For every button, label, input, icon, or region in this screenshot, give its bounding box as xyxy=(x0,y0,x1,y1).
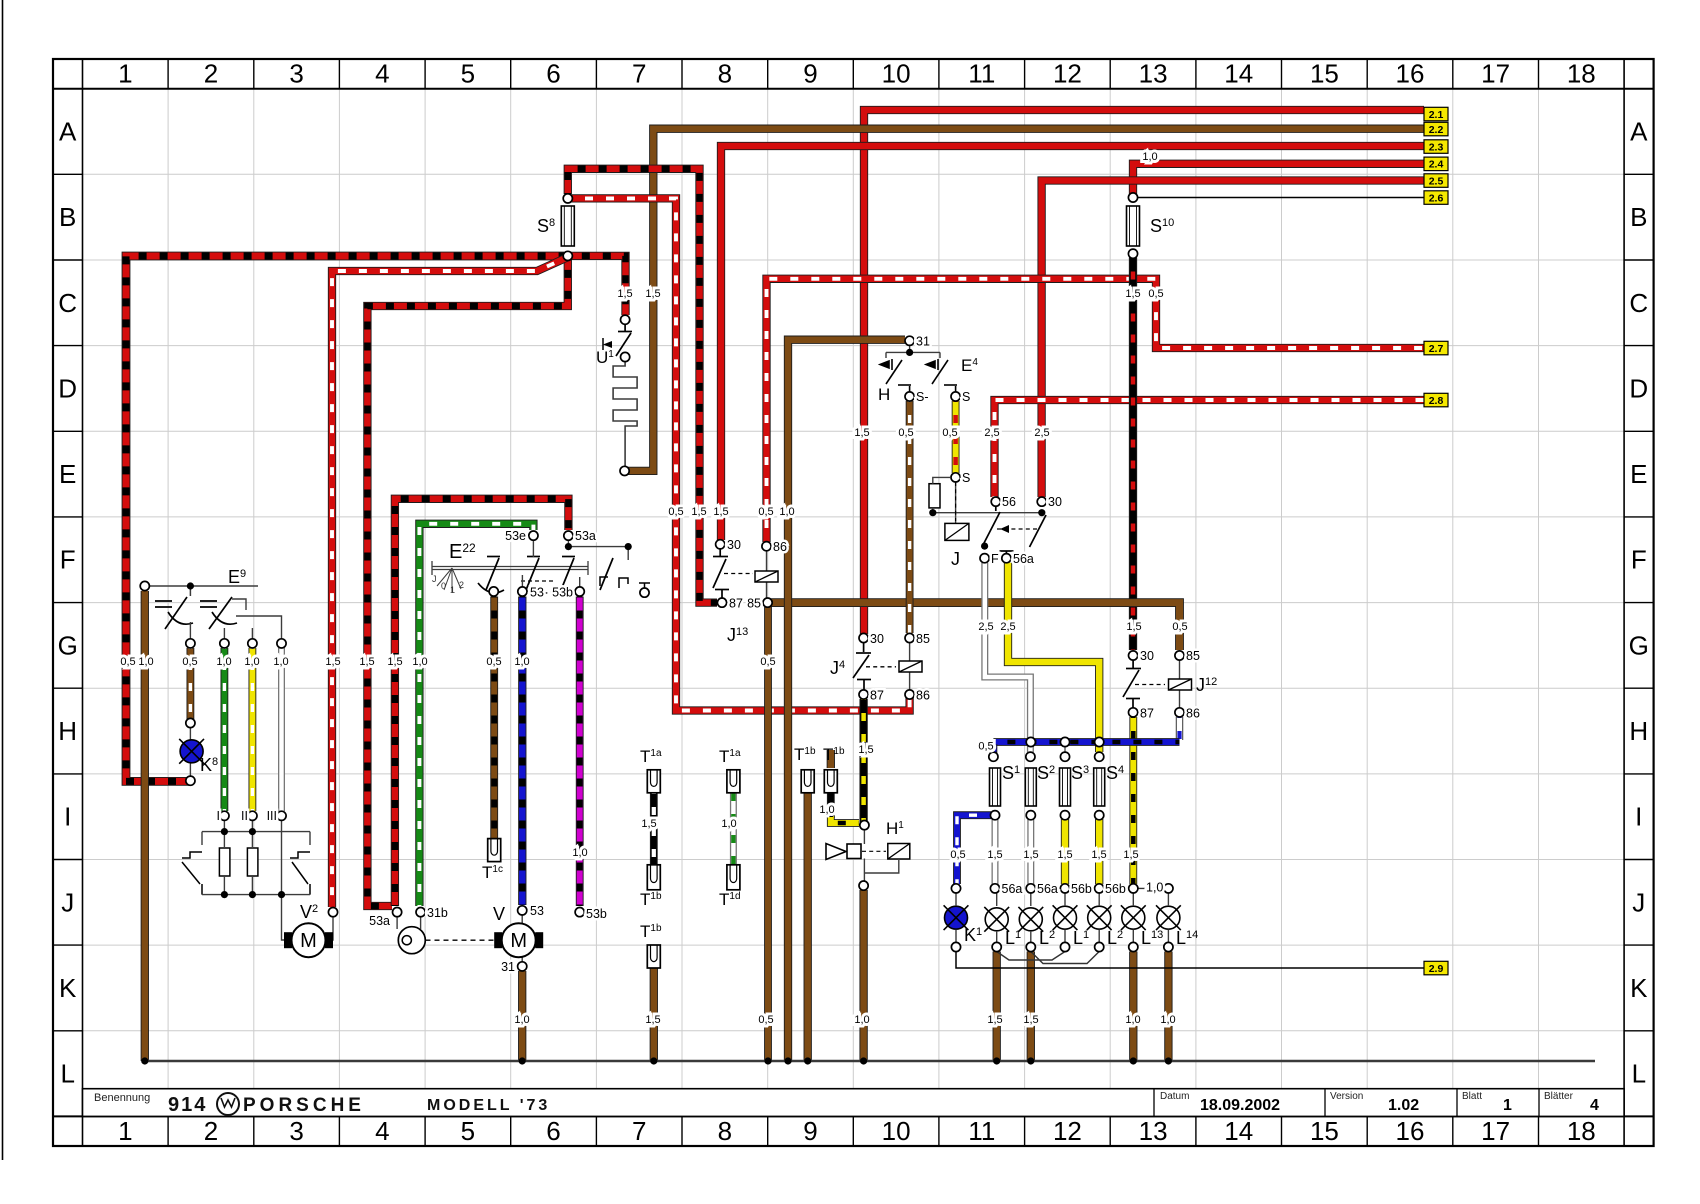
svg-text:1,5: 1,5 xyxy=(641,818,656,830)
svg-text:S: S xyxy=(962,390,970,404)
svg-text:1,0: 1,0 xyxy=(1125,1014,1140,1026)
svg-text:I: I xyxy=(217,809,220,823)
svg-text:7: 7 xyxy=(632,59,646,89)
svg-text:S: S xyxy=(962,471,970,485)
svg-text:1,5: 1,5 xyxy=(645,1014,660,1026)
svg-text:1.02: 1.02 xyxy=(1388,1097,1419,1114)
svg-text:L: L xyxy=(60,1059,74,1089)
svg-text:0,5: 0,5 xyxy=(486,656,501,668)
svg-text:1,5: 1,5 xyxy=(987,849,1002,861)
svg-text:13: 13 xyxy=(1139,1116,1168,1146)
svg-text:30: 30 xyxy=(1048,495,1062,509)
svg-text:1,5: 1,5 xyxy=(1023,849,1038,861)
svg-text:0,5: 0,5 xyxy=(1172,621,1187,633)
svg-text:53a: 53a xyxy=(369,914,390,928)
svg-text:86: 86 xyxy=(773,540,787,554)
svg-text:S-: S- xyxy=(916,390,929,404)
svg-text:H: H xyxy=(878,385,890,404)
svg-text:D: D xyxy=(1629,374,1648,404)
svg-text:56a: 56a xyxy=(1037,882,1058,896)
svg-text:18.09.2002: 18.09.2002 xyxy=(1200,1097,1280,1114)
svg-text:K: K xyxy=(1630,973,1648,1003)
svg-text:A: A xyxy=(59,117,77,147)
svg-text:2.7: 2.7 xyxy=(1429,343,1444,355)
svg-text:J: J xyxy=(61,887,74,917)
svg-text:85: 85 xyxy=(916,632,930,646)
svg-text:8: 8 xyxy=(718,59,732,89)
svg-text:Datum: Datum xyxy=(1160,1091,1189,1102)
svg-text:1,0: 1,0 xyxy=(273,656,288,668)
svg-text:2.5: 2.5 xyxy=(1429,175,1444,187)
svg-text:30: 30 xyxy=(727,538,741,552)
svg-text:86: 86 xyxy=(916,689,930,703)
svg-text:M: M xyxy=(510,930,527,952)
svg-text:56: 56 xyxy=(1002,495,1016,509)
svg-text:18: 18 xyxy=(1567,1116,1596,1146)
svg-text:13: 13 xyxy=(1139,59,1168,89)
svg-text:0: 0 xyxy=(441,581,446,591)
svg-text:87: 87 xyxy=(729,597,743,611)
svg-text:J: J xyxy=(1632,887,1645,917)
svg-text:0,5: 0,5 xyxy=(898,427,913,439)
svg-text:15: 15 xyxy=(1310,1116,1339,1146)
svg-text:G: G xyxy=(58,630,78,660)
svg-text:2.1: 2.1 xyxy=(1429,109,1444,121)
svg-text:PORSCHE: PORSCHE xyxy=(243,1095,365,1116)
svg-text:2,5: 2,5 xyxy=(1034,427,1049,439)
svg-text:11: 11 xyxy=(968,59,995,89)
svg-text:31: 31 xyxy=(501,960,515,974)
svg-text:Blätter: Blätter xyxy=(1544,1091,1574,1102)
svg-text:4: 4 xyxy=(1590,1097,1599,1114)
svg-text:2.6: 2.6 xyxy=(1429,192,1444,204)
svg-text:2.8: 2.8 xyxy=(1429,395,1444,407)
svg-text:2: 2 xyxy=(204,59,218,89)
svg-text:V: V xyxy=(493,904,505,924)
svg-text:1,0: 1,0 xyxy=(244,656,259,668)
svg-text:31: 31 xyxy=(916,335,930,349)
svg-text:1,5: 1,5 xyxy=(617,288,632,300)
svg-text:K: K xyxy=(59,973,77,1003)
svg-text:0,5: 0,5 xyxy=(120,656,135,668)
svg-text:11: 11 xyxy=(968,1116,995,1146)
svg-text:1: 1 xyxy=(118,1116,132,1146)
svg-text:III: III xyxy=(267,809,277,823)
svg-text:1: 1 xyxy=(450,585,455,595)
svg-text:914: 914 xyxy=(168,1094,207,1116)
svg-text:2,5: 2,5 xyxy=(984,427,999,439)
svg-text:7: 7 xyxy=(632,1116,646,1146)
svg-text:56a: 56a xyxy=(1002,882,1023,896)
svg-text:1,5: 1,5 xyxy=(854,427,869,439)
svg-text:0,5: 0,5 xyxy=(758,1014,773,1026)
svg-text:1,0: 1,0 xyxy=(412,656,427,668)
svg-text:1,5: 1,5 xyxy=(713,506,728,518)
svg-text:1: 1 xyxy=(118,59,132,89)
svg-text:F: F xyxy=(60,545,76,575)
svg-text:10: 10 xyxy=(882,1116,911,1146)
svg-text:4: 4 xyxy=(375,1116,389,1146)
svg-text:H: H xyxy=(58,716,77,746)
svg-text:G: G xyxy=(1629,630,1649,660)
svg-text:1,0: 1,0 xyxy=(721,818,736,830)
svg-text:1,5: 1,5 xyxy=(1126,621,1141,633)
svg-text:1,0: 1,0 xyxy=(1146,881,1163,895)
svg-text:0,5: 0,5 xyxy=(978,741,993,753)
svg-text:0,5: 0,5 xyxy=(760,656,775,668)
svg-text:C: C xyxy=(58,288,77,318)
svg-text:6: 6 xyxy=(546,59,560,89)
svg-text:1: 1 xyxy=(1503,1097,1512,1114)
svg-text:56b: 56b xyxy=(1105,882,1126,896)
svg-text:1,5: 1,5 xyxy=(858,744,873,756)
svg-text:0,5: 0,5 xyxy=(950,849,965,861)
svg-text:F: F xyxy=(991,552,999,566)
svg-text:C: C xyxy=(1629,288,1648,318)
svg-text:B: B xyxy=(1630,202,1647,232)
svg-text:1,5: 1,5 xyxy=(359,656,374,668)
svg-text:D: D xyxy=(58,374,77,404)
svg-text:1,5: 1,5 xyxy=(1125,288,1140,300)
svg-text:14: 14 xyxy=(1224,1116,1253,1146)
svg-text:2.9: 2.9 xyxy=(1429,963,1444,975)
svg-text:1,0: 1,0 xyxy=(819,804,834,816)
svg-text:1,5: 1,5 xyxy=(387,656,402,668)
svg-text:I: I xyxy=(64,802,71,832)
svg-text:3: 3 xyxy=(289,1116,303,1146)
svg-text:2: 2 xyxy=(204,1116,218,1146)
svg-text:53: 53 xyxy=(530,586,544,600)
svg-text:0,5: 0,5 xyxy=(758,506,773,518)
svg-text:1,0: 1,0 xyxy=(1142,151,1157,163)
svg-text:18: 18 xyxy=(1567,59,1596,89)
svg-text:56a: 56a xyxy=(1013,552,1034,566)
svg-text:2,5: 2,5 xyxy=(1000,621,1015,633)
svg-text:J: J xyxy=(951,549,960,569)
svg-text:1,0: 1,0 xyxy=(572,847,587,859)
svg-text:8: 8 xyxy=(718,1116,732,1146)
svg-text:9: 9 xyxy=(803,1116,817,1146)
svg-text:2,5: 2,5 xyxy=(978,621,993,633)
svg-text:1,5: 1,5 xyxy=(1057,849,1072,861)
svg-text:87: 87 xyxy=(1140,707,1154,721)
svg-text:56b: 56b xyxy=(1071,882,1092,896)
svg-text:H: H xyxy=(1629,716,1648,746)
svg-text:31b: 31b xyxy=(427,906,448,920)
svg-text:B: B xyxy=(59,202,76,232)
svg-text:1,5: 1,5 xyxy=(691,506,706,518)
svg-text:0,5: 0,5 xyxy=(668,506,683,518)
svg-text:F: F xyxy=(1631,545,1647,575)
svg-text:II: II xyxy=(241,809,248,823)
svg-text:2.3: 2.3 xyxy=(1429,141,1444,153)
svg-text:53b: 53b xyxy=(586,907,607,921)
svg-text:M: M xyxy=(300,930,317,952)
svg-text:2.4: 2.4 xyxy=(1429,159,1444,171)
svg-text:1,5: 1,5 xyxy=(987,1014,1002,1026)
svg-text:0,5: 0,5 xyxy=(1148,288,1163,300)
svg-text:1,0: 1,0 xyxy=(1160,1014,1175,1026)
svg-text:MODELL '73: MODELL '73 xyxy=(427,1097,550,1114)
svg-text:10: 10 xyxy=(882,59,911,89)
svg-text:5: 5 xyxy=(461,59,475,89)
svg-text:12: 12 xyxy=(1053,1116,1082,1146)
svg-text:53: 53 xyxy=(530,904,544,918)
svg-text:3: 3 xyxy=(289,59,303,89)
svg-text:53e: 53e xyxy=(505,529,526,543)
svg-text:14: 14 xyxy=(1224,59,1253,89)
svg-text:L: L xyxy=(1632,1059,1646,1089)
svg-text:86: 86 xyxy=(1186,707,1200,721)
svg-text:1,5: 1,5 xyxy=(1123,849,1138,861)
svg-text:Version: Version xyxy=(1330,1091,1363,1102)
svg-text:30: 30 xyxy=(1140,649,1154,663)
svg-text:4: 4 xyxy=(375,59,389,89)
svg-text:0,5: 0,5 xyxy=(182,656,197,668)
svg-text:53a: 53a xyxy=(575,529,596,543)
svg-text:E: E xyxy=(59,459,76,489)
svg-text:J: J xyxy=(432,574,437,584)
svg-text:1,0: 1,0 xyxy=(138,656,153,668)
svg-text:E: E xyxy=(1630,459,1647,489)
svg-text:16: 16 xyxy=(1396,1116,1425,1146)
svg-text:2: 2 xyxy=(459,580,464,590)
svg-text:85: 85 xyxy=(1186,649,1200,663)
svg-text:53b: 53b xyxy=(552,586,573,600)
svg-text:Blatt: Blatt xyxy=(1462,1091,1482,1102)
svg-text:1,5: 1,5 xyxy=(1091,849,1106,861)
svg-text:17: 17 xyxy=(1481,1116,1510,1146)
svg-text:6: 6 xyxy=(546,1116,560,1146)
svg-text:1,0: 1,0 xyxy=(216,656,231,668)
svg-text:1,0: 1,0 xyxy=(514,656,529,668)
svg-text:Benennung: Benennung xyxy=(94,1092,150,1104)
svg-text:1,0: 1,0 xyxy=(514,1014,529,1026)
svg-text:5: 5 xyxy=(461,1116,475,1146)
svg-text:87: 87 xyxy=(870,689,884,703)
svg-text:9: 9 xyxy=(803,59,817,89)
svg-text:0,5: 0,5 xyxy=(942,427,957,439)
svg-text:17: 17 xyxy=(1481,59,1510,89)
svg-text:I: I xyxy=(1635,802,1642,832)
svg-text:2.2: 2.2 xyxy=(1429,124,1444,136)
svg-text:16: 16 xyxy=(1396,59,1425,89)
svg-text:1,5: 1,5 xyxy=(325,656,340,668)
svg-text:1,5: 1,5 xyxy=(1023,1014,1038,1026)
svg-text:12: 12 xyxy=(1053,59,1082,89)
svg-text:1,0: 1,0 xyxy=(854,1014,869,1026)
svg-text:85: 85 xyxy=(747,597,761,611)
svg-text:1,0: 1,0 xyxy=(779,506,794,518)
svg-text:30: 30 xyxy=(870,632,884,646)
svg-text:15: 15 xyxy=(1310,59,1339,89)
svg-text:A: A xyxy=(1630,117,1648,147)
svg-text:1,5: 1,5 xyxy=(645,288,660,300)
